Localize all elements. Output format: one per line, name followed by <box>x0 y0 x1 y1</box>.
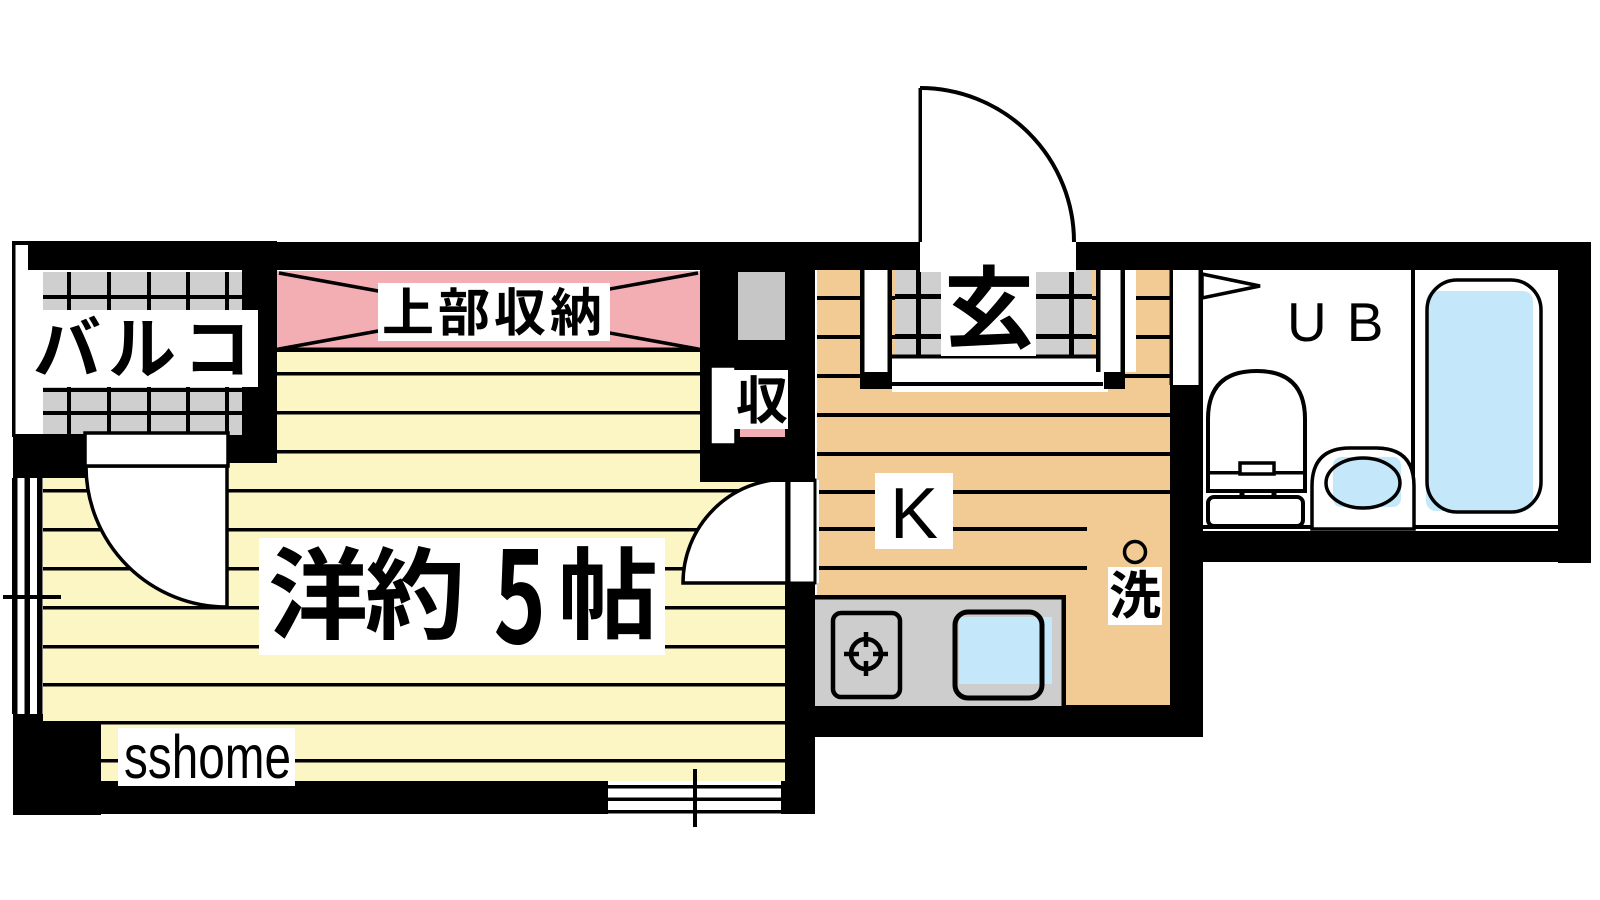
svg-text:UB: UB <box>1287 291 1403 353</box>
svg-text:K: K <box>890 474 938 554</box>
svg-text:sshome: sshome <box>124 723 291 791</box>
